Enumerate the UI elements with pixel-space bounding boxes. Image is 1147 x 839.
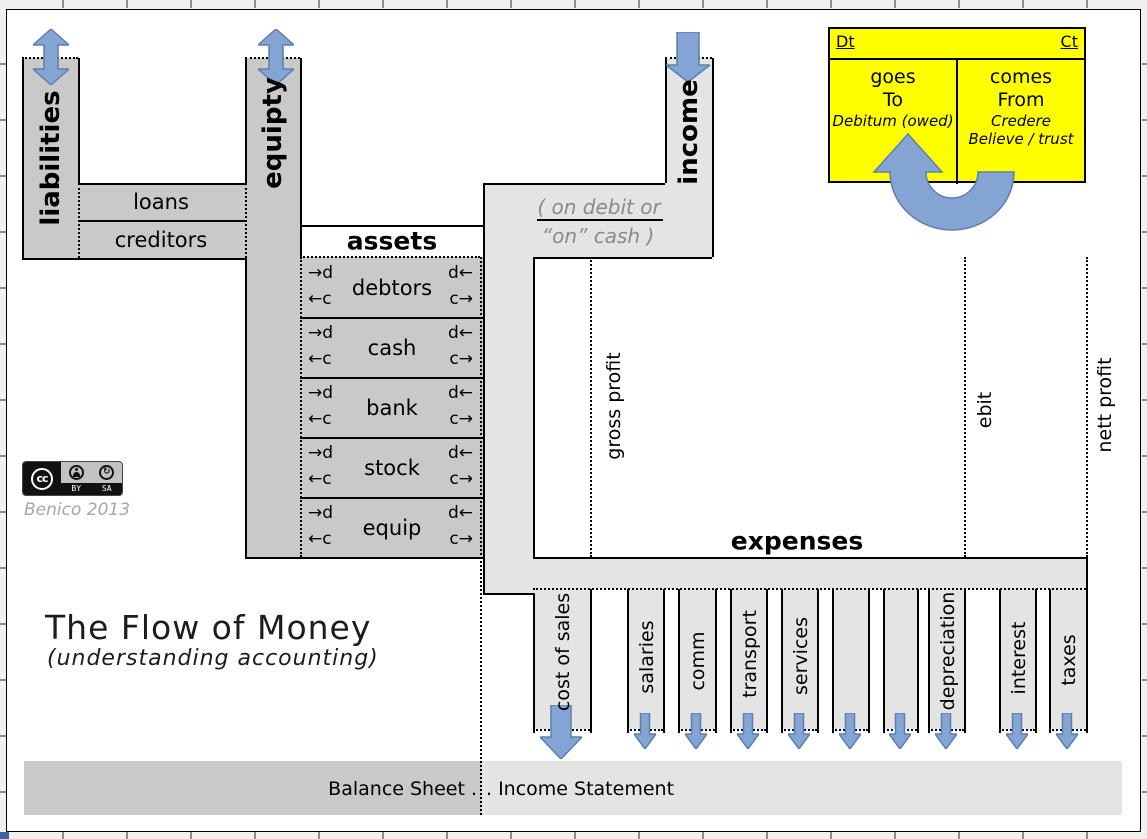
interest-label: interest (1008, 622, 1030, 695)
sa-share-alike-icon: ↻ (99, 465, 114, 480)
interest-out-arrow-icon (1006, 713, 1028, 749)
nett-profit-label: nett profit (1094, 357, 1116, 452)
nett-profit-line (1086, 257, 1088, 557)
bottom-ruler (0, 832, 1147, 839)
diagram-title: The Flow of Money (45, 608, 371, 647)
transport-label: transport (739, 610, 761, 698)
depreciation-out-arrow-icon (935, 713, 957, 749)
comm-out-arrow-icon (685, 713, 707, 749)
asset-row-debtors: →d←c d←c→ debtors (300, 257, 483, 317)
scroll-nub (0, 832, 9, 839)
ct-abbr: Ct (1061, 32, 1078, 58)
credit-to-debit-curved-arrow-icon (828, 130, 1058, 238)
gross-profit-line (590, 257, 592, 557)
expenses-band (533, 557, 1086, 589)
cash-note-line2: “on” cash ) (542, 224, 655, 248)
cost-of-sales-out-arrow-icon (540, 705, 582, 759)
channel-unlabeled-2 (883, 589, 917, 729)
transport-out-arrow-icon (737, 713, 759, 749)
loans-label: loans (133, 190, 189, 214)
asset-row-cash: →d←c d←c→ cash (300, 317, 483, 377)
creditors-label: creditors (115, 228, 207, 252)
assets-heading: assets (347, 227, 437, 256)
salaries-out-arrow-icon (634, 713, 656, 749)
author-credit: Benico 2013 (24, 500, 130, 520)
cash-note-line1: ( on debit or (537, 195, 660, 219)
asset-row-stock: →d←c d←c→ stock (300, 437, 483, 497)
taxes-out-arrow-icon (1056, 713, 1078, 749)
taxes-label: taxes (1058, 634, 1080, 685)
channel-unlabeled-1 (832, 589, 868, 729)
salaries-label: salaries (636, 620, 658, 693)
cash-note-divider (537, 219, 663, 221)
balance-sheet-footer-label: Balance Sheet . (0, 778, 477, 800)
right-ruler (1142, 9, 1147, 831)
asset-row-bank: →d←c d←c→ bank (300, 377, 483, 437)
dt-abbr: Dt (836, 32, 855, 58)
income-label: income (674, 79, 704, 184)
services-label: services (790, 617, 812, 695)
income-down-strip (483, 257, 533, 593)
diagram-subtitle: (understanding accounting) (47, 646, 379, 671)
spreadsheet-drawing-page: liabilities equipty income loans credito… (0, 0, 1147, 839)
liabilities-flow-arrow-icon (33, 29, 69, 85)
by-person-icon (69, 465, 84, 480)
services-out-arrow-icon (788, 713, 810, 749)
ebit-line (964, 257, 966, 557)
cc-logo-icon: cc (31, 468, 53, 490)
expenses-heading: expenses (731, 527, 863, 556)
gross-profit-label: gross profit (603, 352, 625, 459)
cc-by-sa-badge: cc ↻ BY SA (22, 461, 123, 496)
expense-out-arrow-icon (889, 713, 911, 749)
expense-out-arrow-icon (839, 713, 861, 749)
column-ruler (0, 0, 1147, 8)
income-in-arrow-icon (666, 32, 710, 82)
liabilities-label: liabilities (36, 90, 66, 225)
depreciation-label: depreciation (937, 592, 959, 711)
cost-of-sales-label: cost of sales (552, 593, 574, 711)
income-statement-footer-label: . Income Statement (486, 778, 674, 800)
asset-row-equip: →d←c d←c→ equip (300, 497, 483, 557)
equity-label: equipty (258, 77, 288, 189)
comm-label: comm (687, 631, 709, 690)
ebit-label: ebit (974, 392, 996, 428)
